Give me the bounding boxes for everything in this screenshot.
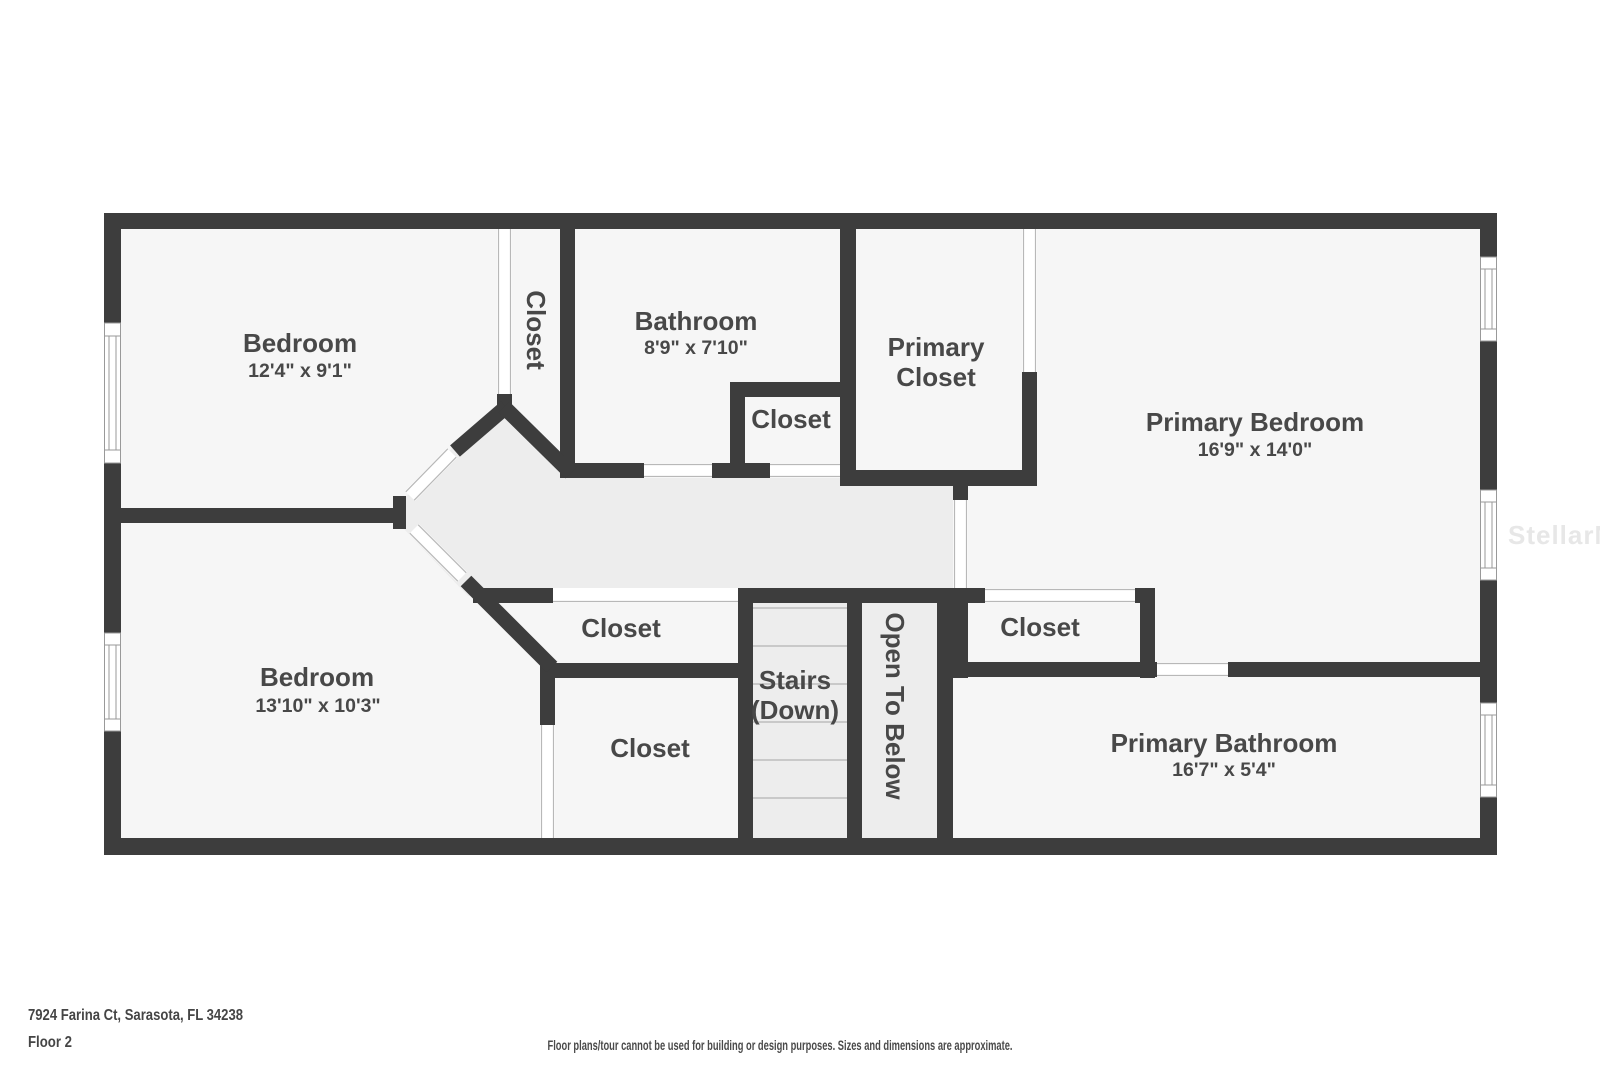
wall-primarybath-top-b: [1228, 662, 1497, 677]
door-bath-closet: [770, 463, 840, 478]
opening-upper-closet: [553, 588, 738, 603]
wall-closet-divider: [548, 663, 753, 678]
wall-exterior-left: [104, 213, 121, 855]
label-bathroom-dims: 8'9" x 7'10": [644, 337, 748, 359]
label-primary-bathroom: Primary Bathroom: [1111, 728, 1338, 758]
label-bedroom-bottom: Bedroom: [260, 662, 374, 692]
window-right-primary-2: [1481, 490, 1497, 580]
wall-door-cap: [953, 486, 968, 500]
window-right-primary-1: [1481, 257, 1497, 341]
label-closet-primary-hall: Closet: [1000, 612, 1080, 642]
wall-exterior-bottom: [104, 838, 1497, 855]
window-left-bottom-bedroom: [105, 633, 121, 731]
label-primary-bedroom: Primary Bedroom: [1146, 407, 1364, 437]
footer-floor: Floor 2: [28, 1034, 72, 1051]
wall-bathroom-left: [560, 229, 575, 478]
label-stairs-2: (Down): [751, 695, 839, 725]
label-bedroom-top-dims: 12'4" x 9'1": [248, 360, 352, 382]
floor-fills: [104, 213, 1497, 855]
floor-plan-svg: Bedroom 12'4" x 9'1" Closet Bathroom 8'9…: [0, 0, 1600, 1066]
wall-hall-vertex: [393, 496, 406, 529]
footer-address: 7924 Farina Ct, Sarasota, FL 34238: [28, 1007, 243, 1024]
wall-primarycloset-right: [1022, 372, 1037, 486]
door-lower-closet: [540, 725, 555, 838]
wall-bedroom-divider: [104, 508, 405, 523]
wall-bathroom-bottom-b: [712, 463, 770, 478]
label-closet-bath: Closet: [751, 404, 831, 434]
door-primary-bathroom: [1157, 662, 1228, 677]
floor-plan-page: Bedroom 12'4" x 9'1" Closet Bathroom 8'9…: [0, 0, 1600, 1066]
door-hall-closet: [985, 588, 1135, 603]
watermark-stellarmls: StellarMLS: [1508, 520, 1600, 550]
label-closet-hall-upper: Closet: [581, 613, 661, 643]
door-primary-closet: [1022, 229, 1037, 372]
footer-disclaimer: Floor plans/tour cannot be used for buil…: [548, 1037, 1013, 1053]
window-right-primary-bath: [1481, 703, 1497, 797]
label-primary-bathroom-dims: 16'7" x 5'4": [1172, 759, 1276, 781]
label-open-to-below: Open To Below: [880, 612, 910, 800]
label-closet-hall-lower: Closet: [610, 733, 690, 763]
label-primary-closet-2: Closet: [896, 362, 976, 392]
label-primary-bedroom-dims: 16'9" x 14'0": [1198, 439, 1313, 461]
wall-bathcloset-top: [730, 382, 855, 397]
footer: 7924 Farina Ct, Sarasota, FL 34238 Floor…: [28, 1007, 1013, 1053]
door-bathroom: [644, 463, 712, 478]
window-left-top-bedroom: [105, 323, 121, 463]
wall-exterior-top: [104, 213, 1497, 229]
wall-stairs-right: [847, 588, 862, 854]
wall-primarycloset-bottom: [840, 470, 1037, 486]
wall-lowercloset-left: [540, 663, 555, 725]
label-bedroom-bottom-dims: 13'10" x 10'3": [255, 695, 380, 717]
label-stairs-1: Stairs: [759, 665, 831, 695]
label-bathroom: Bathroom: [635, 306, 758, 336]
label-closet-top: Closet: [521, 290, 551, 370]
door-top-closet: [497, 229, 512, 394]
wall-primarycloset-left: [840, 229, 856, 478]
wall-primarybath-top-a: [937, 662, 1159, 677]
wall-bathcloset-left: [730, 397, 745, 463]
door-primary-bedroom: [953, 500, 968, 588]
label-primary-closet-1: Primary: [888, 332, 985, 362]
label-bedroom-top: Bedroom: [243, 328, 357, 358]
wall-opentobelow-right: [937, 588, 953, 854]
